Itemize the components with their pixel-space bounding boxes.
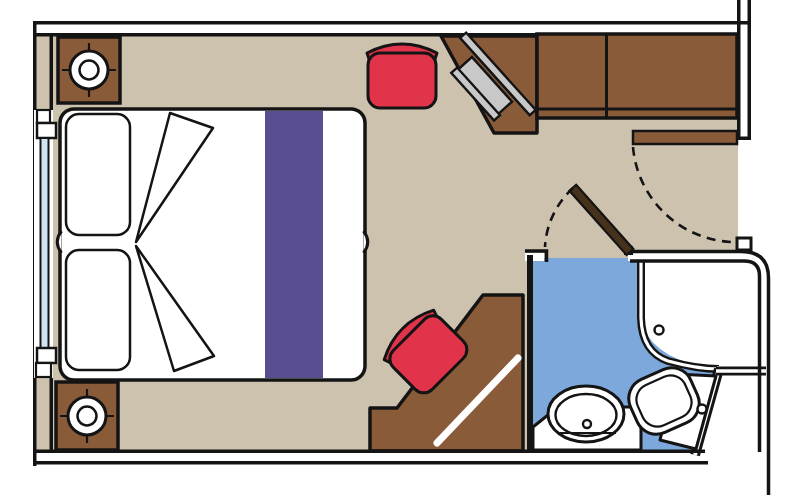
door-jamb-bottom: [737, 238, 751, 250]
window-frame-cap: [37, 110, 50, 123]
balcony-window: [34, 110, 56, 378]
pillow-top: [66, 114, 130, 235]
pillow-bottom: [66, 250, 130, 370]
flush-button: [698, 405, 707, 414]
window-glass: [41, 138, 49, 348]
bottom-wall-outer: [33, 461, 708, 465]
top-wall-outer: [33, 21, 751, 25]
floor-plan-canvas: [0, 0, 800, 504]
washbasin: [548, 386, 624, 442]
bed-runner: [265, 111, 323, 378]
stool: [367, 44, 437, 108]
bottom-wall-inner: [36, 450, 705, 454]
nightstand-bottom: [56, 382, 118, 450]
stool-seat: [368, 53, 436, 108]
mattress-seam-left: [57, 231, 61, 253]
mattress-seam-right: [364, 231, 368, 253]
bathroom-left-wall: [527, 255, 533, 453]
door-jamb-top: [737, 137, 751, 141]
window-frame-cap: [37, 123, 56, 138]
nightstand-top: [58, 37, 120, 103]
shower-drain: [655, 326, 664, 335]
window-frame-cap: [36, 363, 51, 377]
basin-drain: [583, 420, 591, 428]
entry-door-leaf: [633, 131, 737, 144]
wardrobe: [537, 34, 737, 118]
window-frame-cap: [37, 348, 56, 363]
double-bed: [57, 109, 368, 380]
right-wall-outer: [748, 0, 752, 140]
cabin-floor-plan: [0, 0, 800, 504]
